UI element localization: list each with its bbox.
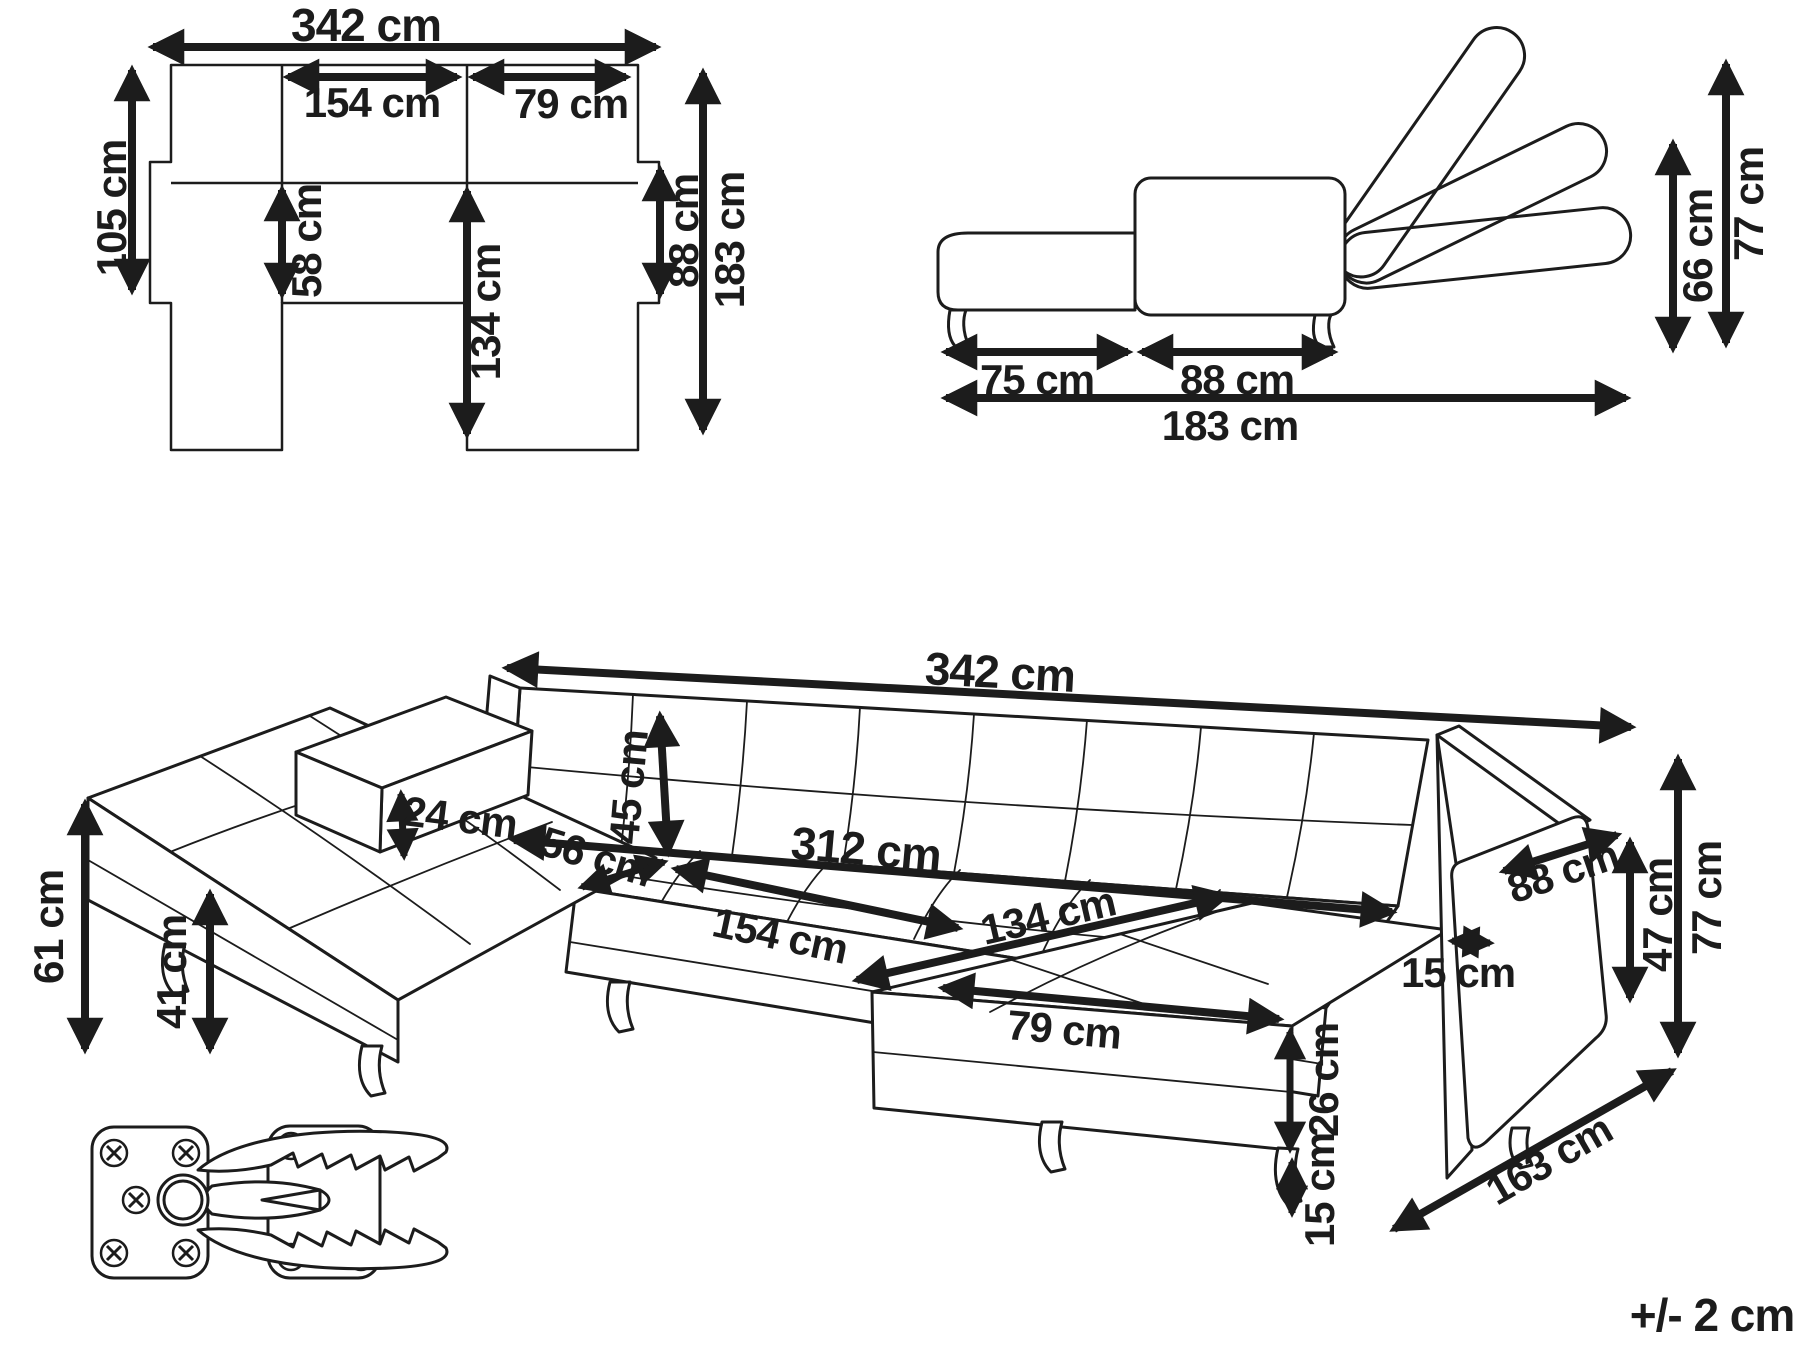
dim-label-top-chaise-length: 134 cm	[462, 244, 510, 380]
side-view-backrest-positions	[1322, 17, 1633, 293]
dim-label-side-chaise-length: 75 cm	[980, 356, 1094, 404]
dim-label-side-total-length: 183 cm	[1162, 402, 1298, 450]
dim-label-pv-chaise-width: 79 cm	[1005, 1001, 1123, 1059]
dim-label-top-total-depth: 183 cm	[706, 172, 754, 308]
dimension-diagram-page: 342 cm 154 cm 79 cm 105 cm 58 cm 134 cm …	[0, 0, 1800, 1350]
mechanism-pivot-inner	[164, 1181, 202, 1219]
side-front-leg	[948, 310, 969, 346]
dim-label-side-seat-length: 88 cm	[1180, 356, 1294, 404]
side-back-leg	[1313, 315, 1334, 347]
dim-label-side-seat-back-height: 66 cm	[1674, 189, 1722, 303]
dim-label-top-right-depth: 88 cm	[660, 174, 708, 288]
dim-label-pv-armrest-side-height: 47 cm	[1634, 858, 1682, 972]
right-chaise-mid-leg	[1039, 1122, 1065, 1172]
dim-label-pv-total-height: 77 cm	[1683, 841, 1731, 955]
dim-label-top-bed-width: 154 cm	[304, 79, 440, 127]
dim-label-pv-backrest-height: 45 cm	[600, 728, 658, 846]
click-clack-mechanism-icon	[92, 1126, 447, 1278]
backrest-position-up	[1322, 17, 1535, 288]
side-seat-cushion	[1135, 178, 1345, 315]
side-view-body	[938, 178, 1345, 347]
dim-label-pv-base-height: 41 cm	[148, 915, 196, 1029]
dim-label-side-max-height: 77 cm	[1725, 147, 1773, 261]
left-chaise-side-leg	[359, 1046, 385, 1096]
bench-leg	[607, 982, 633, 1032]
dim-label-top-total-width: 342 cm	[291, 0, 441, 52]
dim-label-pv-total-width: 342 cm	[924, 641, 1077, 703]
dim-label-top-right-section-width: 79 cm	[514, 80, 628, 128]
dim-label-top-left-depth: 105 cm	[88, 140, 136, 276]
dim-label-top-seat-depth: 58 cm	[283, 184, 331, 298]
arrow-pv-armrest-width	[1452, 941, 1490, 943]
dim-label-pv-leg-height: 15 cm	[1296, 1133, 1344, 1247]
dim-label-pv-seat-front-height: 26 cm	[1300, 1023, 1348, 1137]
tolerance-note: +/- 2 cm	[1630, 1288, 1795, 1342]
side-chaise-slab	[938, 233, 1135, 310]
dim-label-pv-seat-height: 61 cm	[25, 870, 73, 984]
dim-label-pv-armrest-width: 15 cm	[1401, 949, 1515, 997]
right-armrest-top-face	[1437, 726, 1590, 830]
